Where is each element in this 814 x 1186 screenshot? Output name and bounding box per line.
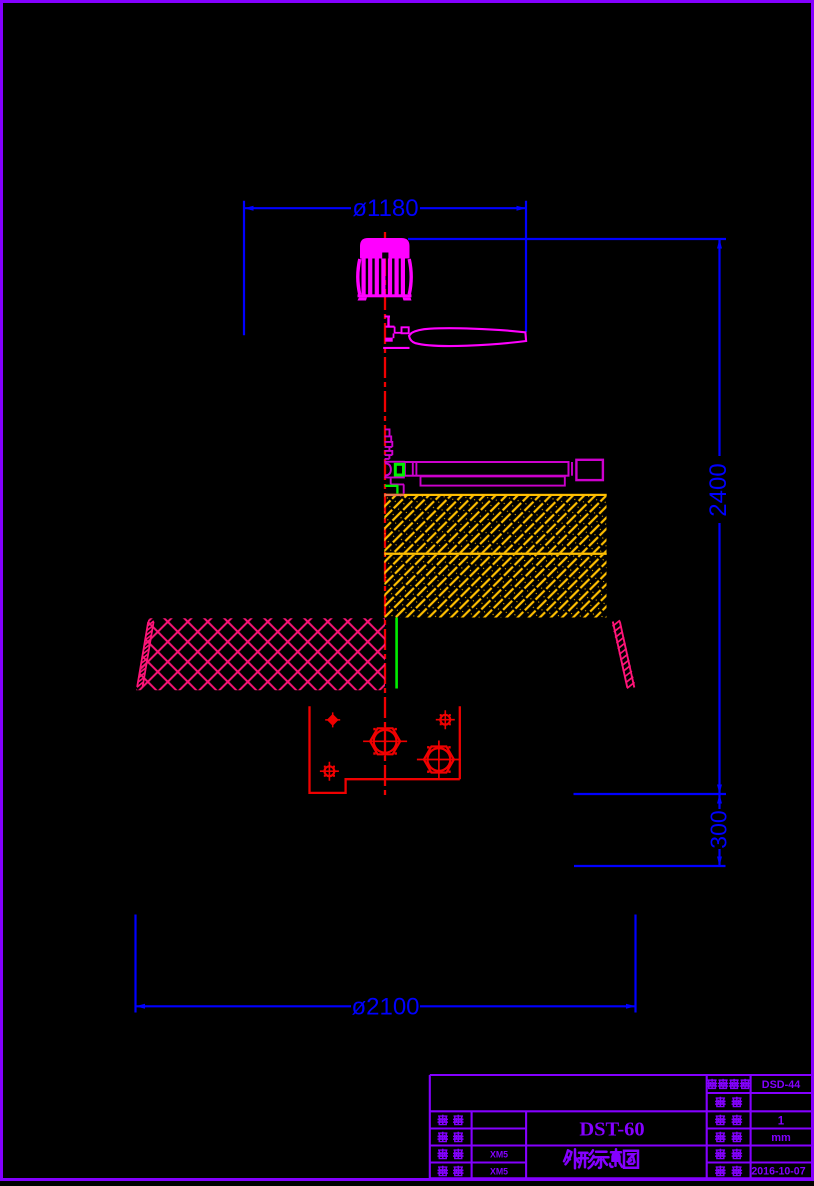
svg-text:2016-10-07: 2016-10-07 [751, 1165, 805, 1177]
svg-text:XM5: XM5 [490, 1150, 508, 1160]
svg-text:300: 300 [706, 810, 732, 848]
svg-text:2400: 2400 [705, 463, 732, 516]
svg-text:DST-60: DST-60 [579, 1119, 644, 1141]
svg-text:ø1180: ø1180 [352, 195, 418, 222]
svg-text:ø2100: ø2100 [351, 994, 419, 1021]
svg-text:DSD-44: DSD-44 [762, 1079, 800, 1091]
svg-text:XM5: XM5 [490, 1166, 508, 1176]
svg-text:mm: mm [771, 1132, 791, 1144]
svg-text:1: 1 [778, 1115, 785, 1127]
